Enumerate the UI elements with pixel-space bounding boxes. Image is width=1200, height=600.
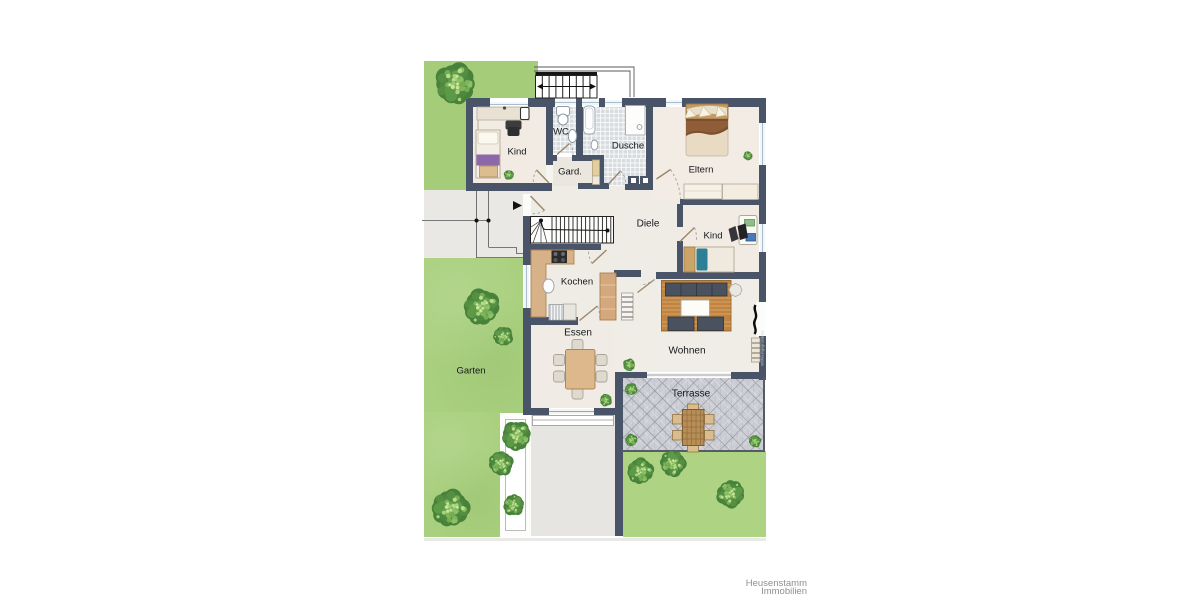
- svg-text:Wohnungsgrundriss: Wohnungsgrundriss: [760, 330, 765, 366]
